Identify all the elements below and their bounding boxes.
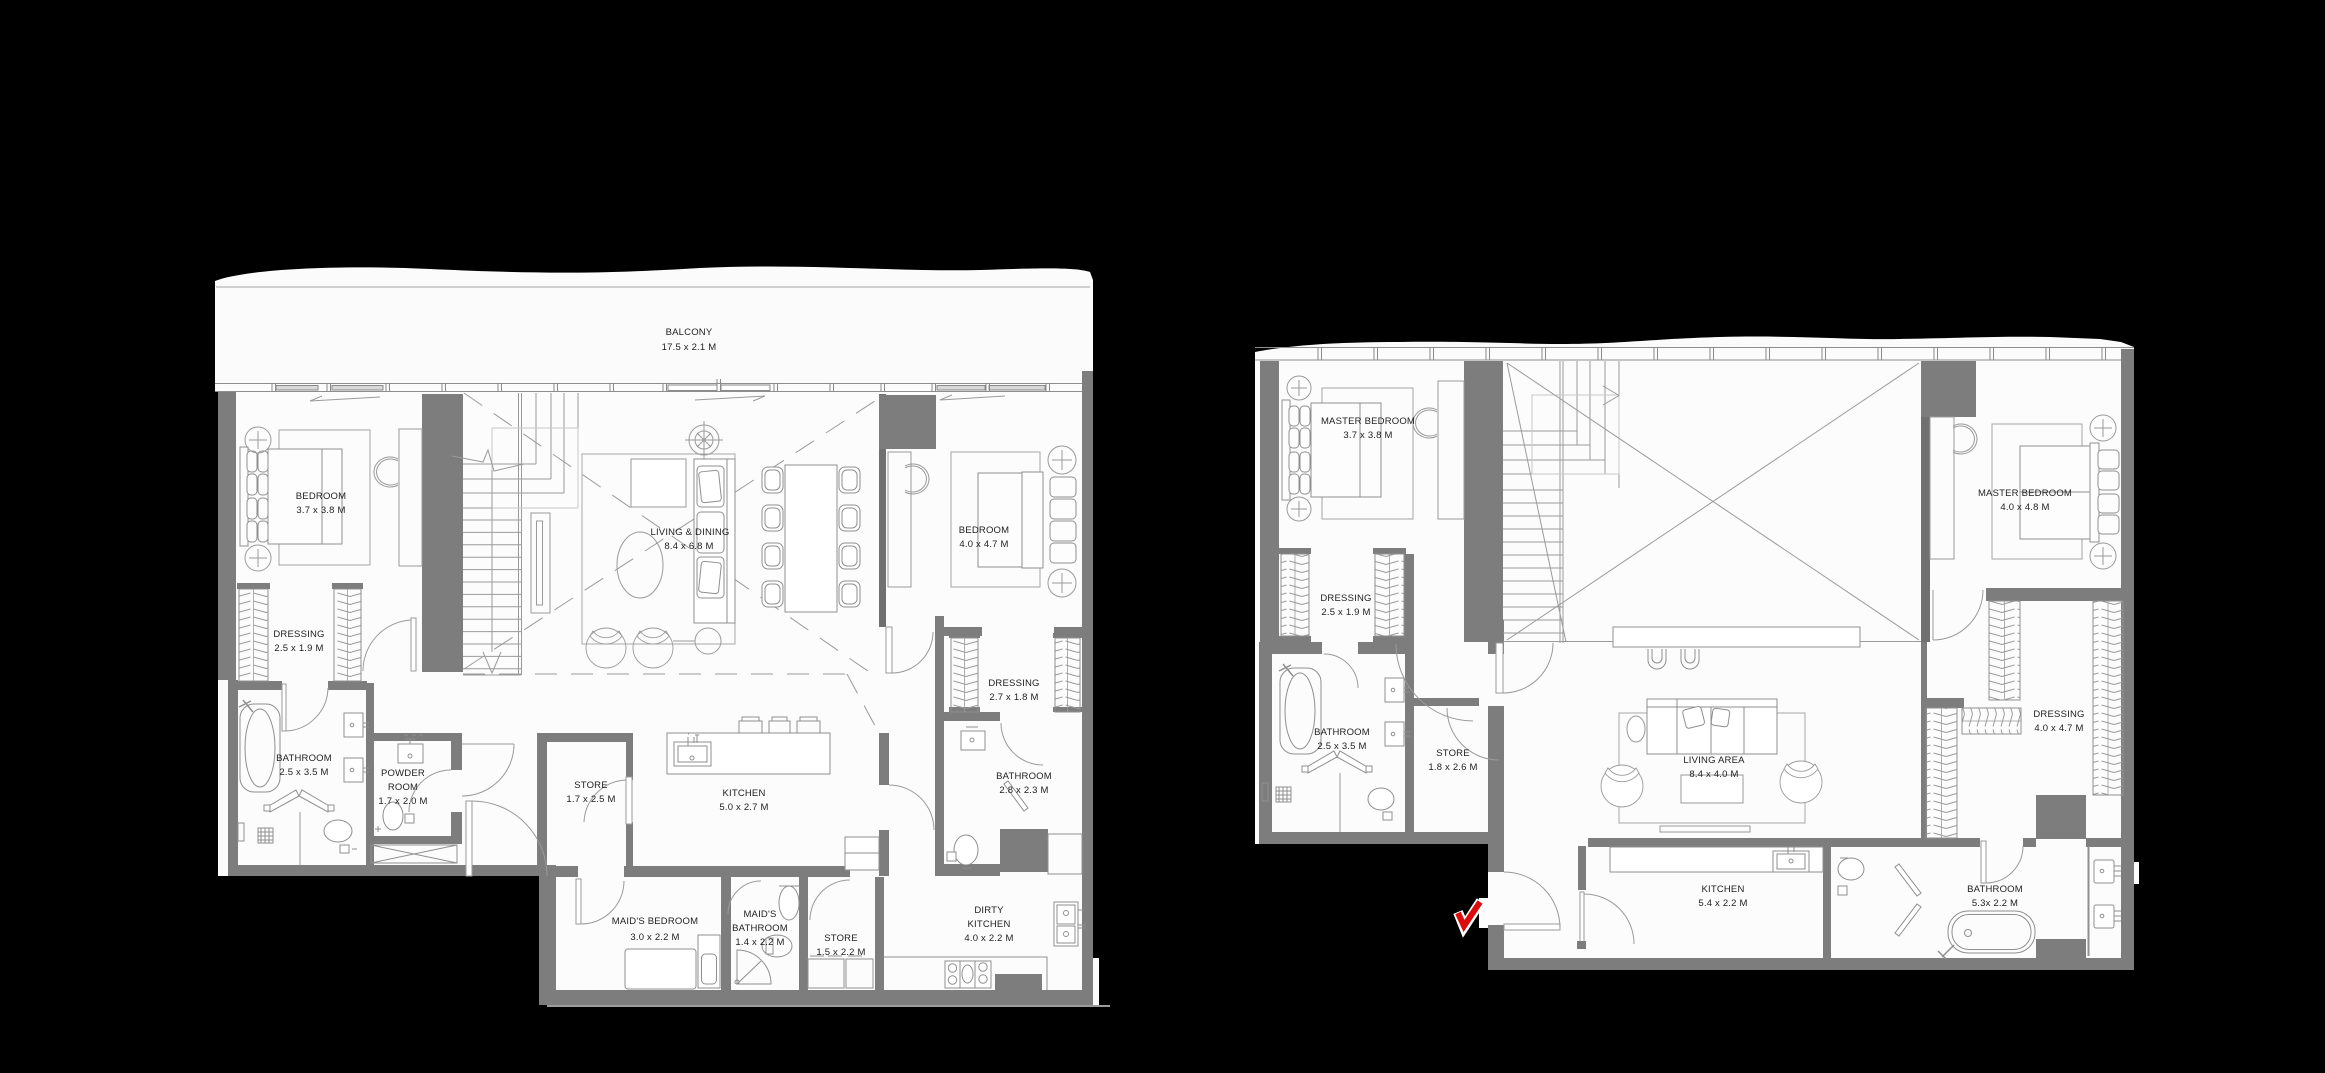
svg-text:MASTER BEDROOM: MASTER BEDROOM [1321, 416, 1415, 427]
svg-text:8.4 x 6.8 M: 8.4 x 6.8 M [664, 541, 713, 552]
svg-text:DRESSING: DRESSING [273, 629, 324, 640]
svg-text:1.5 x 2.2 M: 1.5 x 2.2 M [816, 947, 865, 958]
svg-text:2.7 x 1.8 M: 2.7 x 1.8 M [989, 692, 1038, 703]
svg-text:MAID'S BEDROOM: MAID'S BEDROOM [612, 916, 698, 927]
svg-text:1.7 x 2.5 M: 1.7 x 2.5 M [566, 794, 615, 805]
svg-text:2.5 x 3.5 M: 2.5 x 3.5 M [279, 767, 328, 778]
svg-text:KITCHEN: KITCHEN [722, 788, 765, 799]
svg-text:DRESSING: DRESSING [1320, 593, 1371, 604]
svg-text:STORE: STORE [574, 780, 608, 791]
svg-text:BATHROOM: BATHROOM [1314, 727, 1370, 738]
svg-text:BATHROOM: BATHROOM [996, 771, 1052, 782]
svg-text:4.0 x 4.8 M: 4.0 x 4.8 M [2000, 502, 2049, 513]
svg-text:STORE: STORE [824, 933, 858, 944]
svg-text:DRESSING: DRESSING [2033, 709, 2084, 720]
svg-text:17.5 x 2.1 M: 17.5 x 2.1 M [662, 342, 717, 353]
svg-text:DIRTY: DIRTY [974, 905, 1004, 916]
svg-text:MAID'S: MAID'S [743, 909, 776, 920]
svg-text:ROOM: ROOM [388, 782, 418, 793]
svg-text:4.0 x 4.7 M: 4.0 x 4.7 M [2034, 723, 2083, 734]
svg-text:BATHROOM: BATHROOM [276, 753, 332, 764]
svg-text:8.4 x 4.0 M: 8.4 x 4.0 M [1689, 769, 1738, 780]
svg-text:2.8 x 2.3 M: 2.8 x 2.3 M [999, 785, 1048, 796]
svg-text:BATHROOM: BATHROOM [1967, 884, 2023, 895]
svg-text:3.7 x 3.8 M: 3.7 x 3.8 M [1343, 430, 1392, 441]
svg-text:1.8 x 2.6 M: 1.8 x 2.6 M [1428, 762, 1477, 773]
svg-text:BATHROOM: BATHROOM [732, 923, 788, 934]
svg-text:MASTER BEDROOM: MASTER BEDROOM [1978, 488, 2072, 499]
svg-text:4.0 x 4.7 M: 4.0 x 4.7 M [959, 539, 1008, 550]
svg-text:5.3x 2.2 M: 5.3x 2.2 M [1972, 898, 2018, 909]
svg-text:BEDROOM: BEDROOM [296, 491, 347, 502]
svg-text:3.0 x 2.2 M: 3.0 x 2.2 M [630, 932, 679, 943]
svg-text:1.7 x 2.0 M: 1.7 x 2.0 M [378, 796, 427, 807]
svg-text:5.0 x 2.7 M: 5.0 x 2.7 M [719, 802, 768, 813]
svg-text:2.5 x 1.9 M: 2.5 x 1.9 M [274, 643, 323, 654]
svg-text:POWDER: POWDER [381, 768, 425, 779]
svg-text:4.0 x 2.2 M: 4.0 x 2.2 M [964, 933, 1013, 944]
svg-text:BALCONY: BALCONY [666, 327, 713, 338]
svg-text:KITCHEN: KITCHEN [967, 919, 1010, 930]
svg-text:2.5 x 1.9 M: 2.5 x 1.9 M [1321, 607, 1370, 618]
svg-text:STORE: STORE [1436, 748, 1470, 759]
svg-text:1.4 x 2.2 M: 1.4 x 2.2 M [735, 937, 784, 948]
svg-text:KITCHEN: KITCHEN [1701, 884, 1744, 895]
svg-text:5.4 x 2.2 M: 5.4 x 2.2 M [1698, 898, 1747, 909]
svg-text:3.7 x 3.8 M: 3.7 x 3.8 M [296, 505, 345, 516]
svg-text:LIVING & DINING: LIVING & DINING [650, 527, 729, 538]
svg-text:LIVING AREA: LIVING AREA [1683, 755, 1745, 766]
svg-text:2.5 x 3.5 M: 2.5 x 3.5 M [1317, 741, 1366, 752]
svg-text:DRESSING: DRESSING [988, 678, 1039, 689]
svg-text:BEDROOM: BEDROOM [959, 525, 1010, 536]
